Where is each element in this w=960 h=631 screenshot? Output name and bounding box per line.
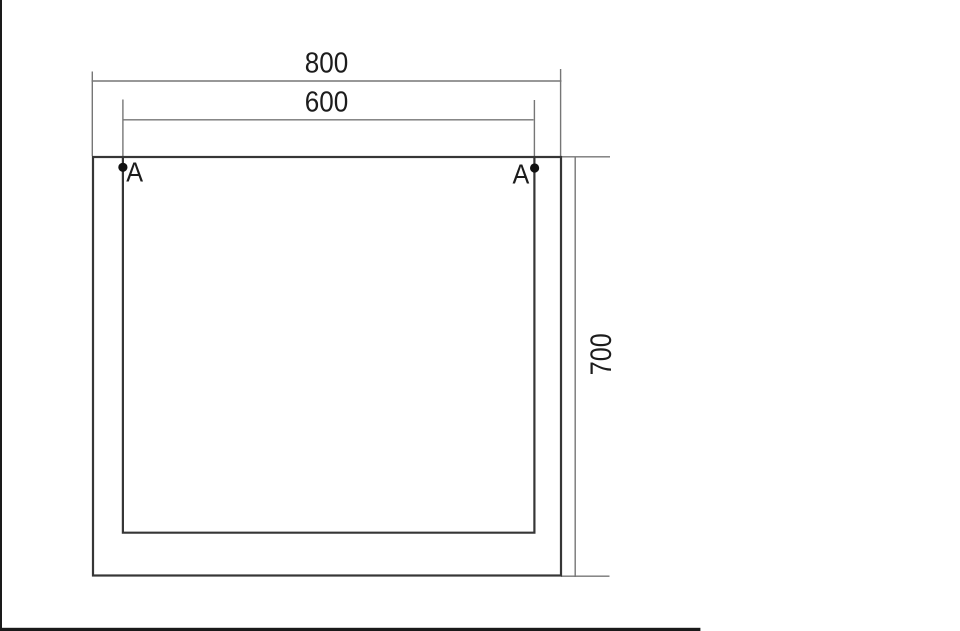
svg-text:800: 800 <box>305 46 349 79</box>
svg-text:A: A <box>513 158 530 190</box>
svg-text:A: A <box>126 156 143 188</box>
svg-text:600: 600 <box>305 85 349 118</box>
svg-text:700: 700 <box>584 333 618 375</box>
